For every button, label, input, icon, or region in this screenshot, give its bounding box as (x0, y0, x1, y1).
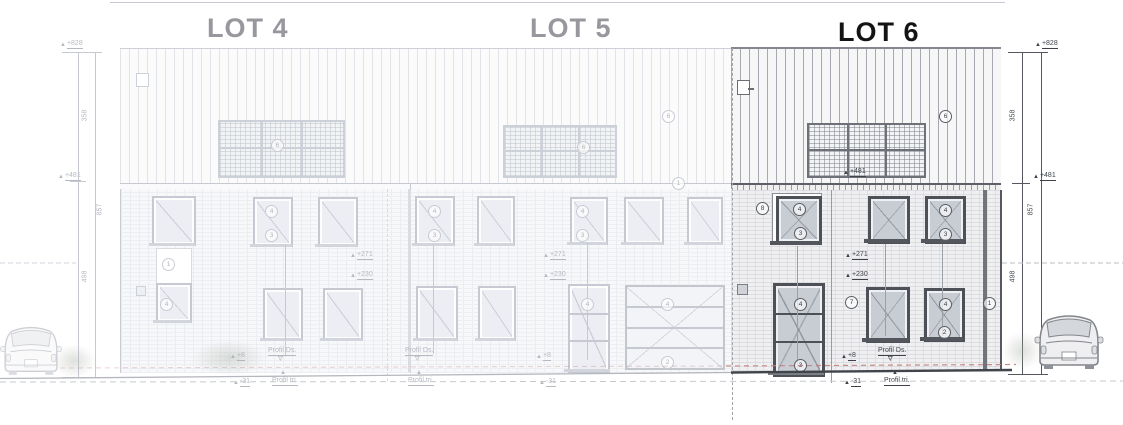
car-left (0, 320, 64, 378)
ground-lines (0, 0, 1123, 425)
car-right (1032, 309, 1106, 371)
vegetation (192, 340, 266, 376)
elevation-drawing: LOT 4 LOT 5 LOT 6 (0, 0, 1123, 425)
